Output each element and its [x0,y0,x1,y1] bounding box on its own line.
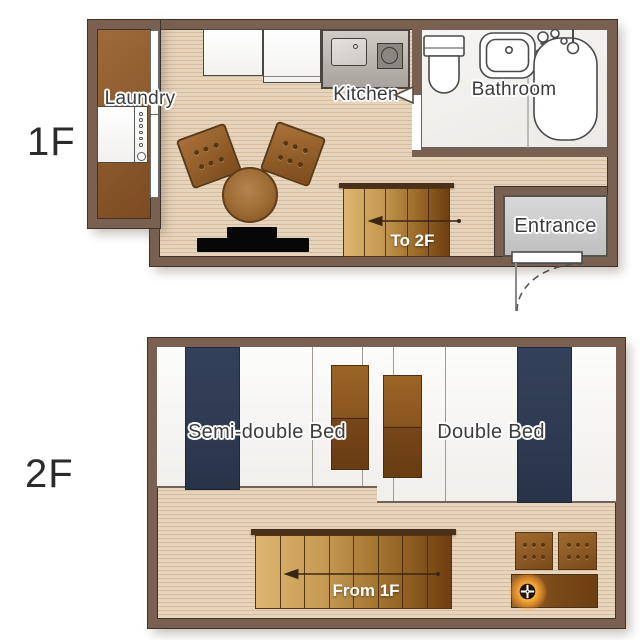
bathroom-label: Bathroom [434,79,594,101]
burner-icon [519,583,536,600]
kitchen-counter [321,29,410,89]
door-arc-icon [517,264,581,311]
floor-cushion [515,532,553,570]
entrance-area: Entrance [494,186,608,257]
tv-stand [197,238,309,252]
stove-icon [377,43,403,69]
entrance-floor: Entrance [503,195,608,257]
washing-machine-icon [97,106,148,163]
semi-double-bed-runner [185,347,240,490]
double-bed-label: Double Bed [391,421,591,444]
kitchen-label: Kitchen [321,84,411,106]
washer-controls [134,107,147,162]
cushion-tufting-dots [521,539,547,563]
entrance-label: Entrance [514,215,596,238]
bed-divider-line [312,347,313,486]
floor-2f-tag: 2F [25,452,74,497]
chair-tufting-dots [189,136,229,175]
round-table [222,167,278,223]
semi-double-bed-label: Semi-double Bed [167,421,367,444]
bathroom-doorway [412,95,421,150]
kitchen-sink-icon [331,38,367,66]
side-table [331,365,369,470]
tv [227,227,277,238]
low-cabinet [511,574,598,608]
bathroom-sink-icon [480,33,535,78]
floor-plan-1f: Kitchen [150,20,617,266]
kitchen-cabinet [203,29,263,76]
cushion-tufting-dots [564,539,591,563]
kitchen-cabinet [263,29,321,83]
cabinet-shelf-line [264,76,320,77]
chair-tufting-dots [273,134,313,173]
floor-cushion [558,532,597,570]
floor-1f-tag: 1F [27,120,76,165]
stairs-to-2f-label: To 2F [359,231,466,251]
floor-plan-page: Kitchen [0,0,640,640]
floor-plan-2f: Semi-double Bed Double Bed From 1F [148,338,625,628]
stairs-from-1f-label: From 1F [286,581,446,601]
laundry-label: Laundry [90,88,190,110]
sliding-door [150,30,159,198]
